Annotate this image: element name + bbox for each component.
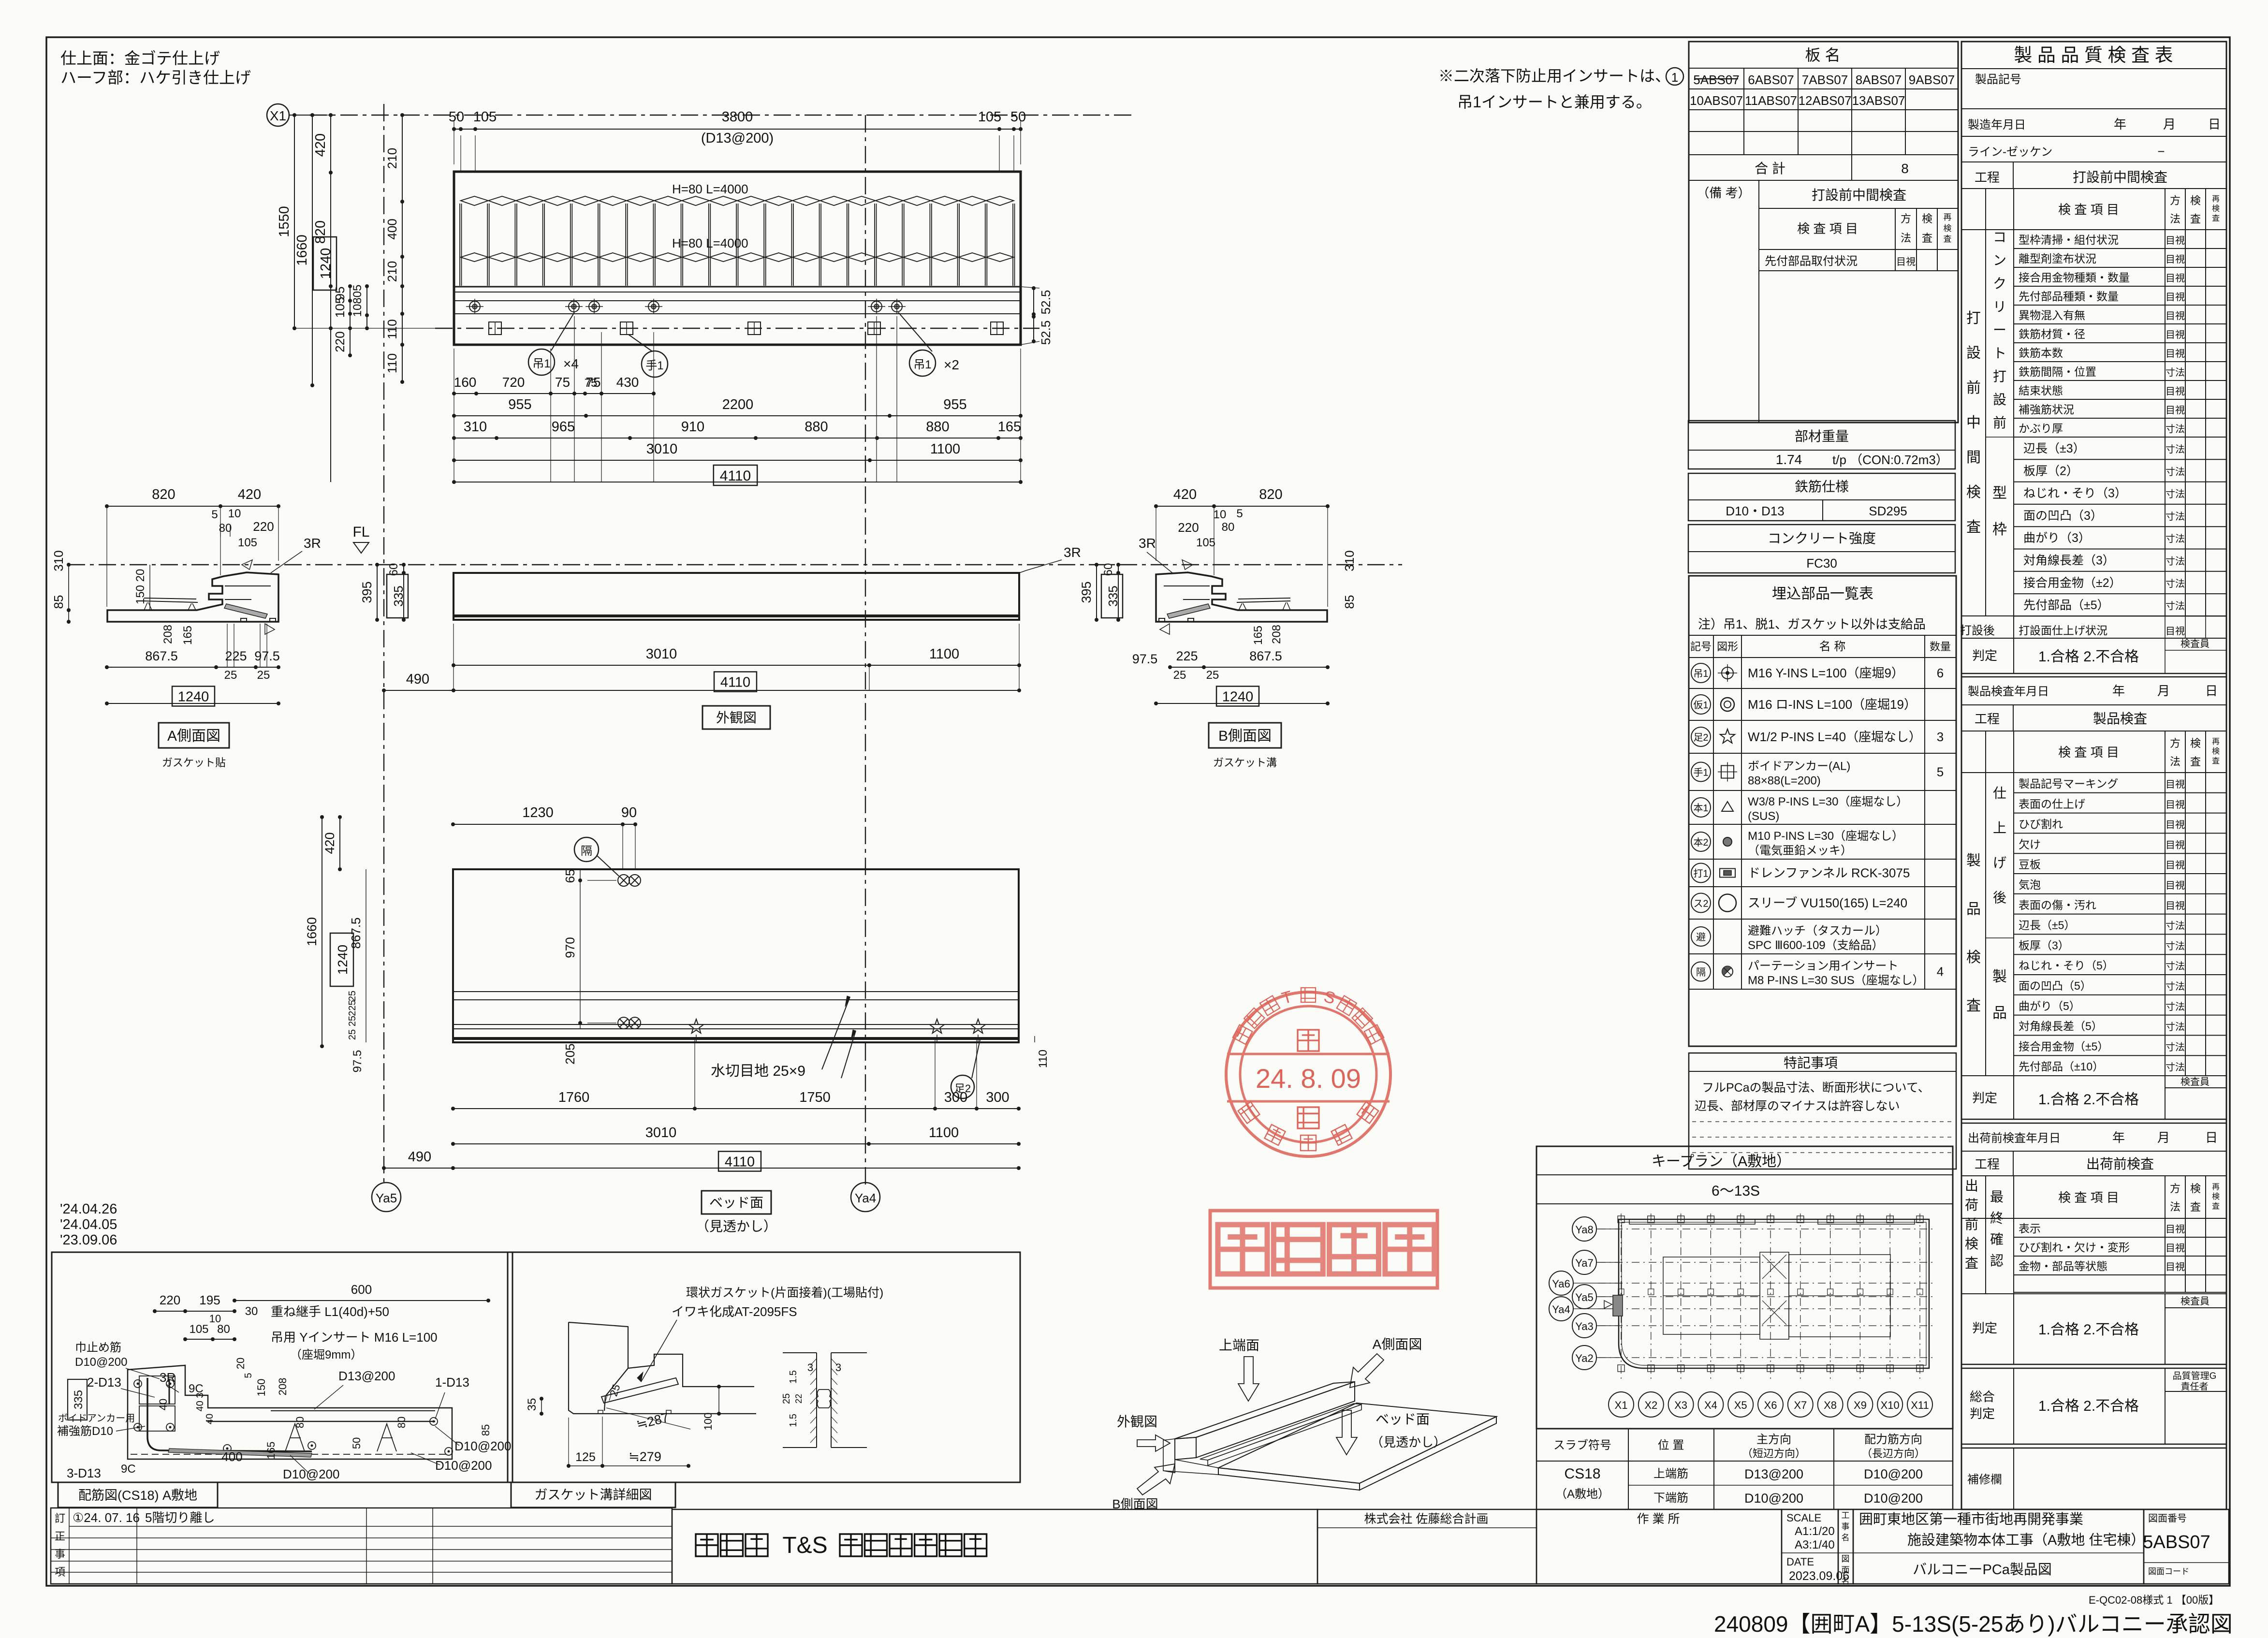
svg-text:法: 法 bbox=[2170, 756, 2180, 768]
svg-text:査: 査 bbox=[2190, 756, 2201, 768]
svg-text:M8 P-INS L=30 SUS（座堀なし）: M8 P-INS L=30 SUS（座堀なし） bbox=[1748, 974, 1924, 987]
svg-text:W3/8 P-INS L=30（座堀なし）: W3/8 P-INS L=30（座堀なし） bbox=[1748, 795, 1908, 808]
svg-text:75: 75 bbox=[585, 377, 598, 390]
svg-text:ねじれ・そり（3）: ねじれ・そり（3） bbox=[2023, 487, 2127, 500]
svg-text:30: 30 bbox=[245, 1305, 258, 1318]
svg-text:査: 査 bbox=[1966, 519, 1981, 535]
svg-text:−: − bbox=[2157, 144, 2165, 159]
svg-text:1240: 1240 bbox=[1222, 689, 1254, 704]
svg-text:寸法: 寸法 bbox=[2166, 981, 2185, 992]
svg-text:×2: ×2 bbox=[944, 357, 959, 372]
svg-text:寸法: 寸法 bbox=[2166, 511, 2185, 522]
svg-text:目視: 目視 bbox=[2166, 819, 2185, 831]
svg-text:目視: 目視 bbox=[2166, 880, 2185, 891]
svg-text:正: 正 bbox=[55, 1530, 65, 1542]
svg-text:3R: 3R bbox=[1139, 536, 1156, 551]
svg-text:6ABS07: 6ABS07 bbox=[1748, 73, 1794, 87]
svg-text:'24.04.05: '24.04.05 bbox=[60, 1217, 117, 1232]
svg-text:80: 80 bbox=[219, 522, 232, 535]
svg-text:目視: 目視 bbox=[2166, 292, 2185, 303]
svg-text:最: 最 bbox=[1990, 1189, 2004, 1204]
svg-text:寸法: 寸法 bbox=[2166, 961, 2185, 972]
svg-text:間: 間 bbox=[1966, 450, 1981, 466]
svg-text:本1: 本1 bbox=[1693, 803, 1708, 814]
svg-text:25: 25 bbox=[347, 1029, 358, 1040]
svg-text:205: 205 bbox=[563, 1043, 577, 1064]
svg-text:隔: 隔 bbox=[1696, 967, 1706, 978]
svg-text:月: 月 bbox=[2157, 1130, 2170, 1145]
svg-text:22: 22 bbox=[794, 1394, 804, 1404]
svg-text:40: 40 bbox=[157, 1399, 169, 1410]
svg-text:（A敷地）: （A敷地） bbox=[1555, 1488, 1610, 1501]
svg-text:X5: X5 bbox=[1734, 1399, 1747, 1411]
svg-text:1240: 1240 bbox=[335, 945, 350, 975]
svg-text:日: 日 bbox=[2208, 117, 2221, 132]
svg-text:1100: 1100 bbox=[929, 1125, 959, 1141]
svg-text:囲町東地区第一種市街地再開発事業: 囲町東地区第一種市街地再開発事業 bbox=[1859, 1511, 2083, 1527]
svg-text:目視: 目視 bbox=[2166, 1243, 2185, 1254]
svg-text:Ya8: Ya8 bbox=[1575, 1224, 1594, 1236]
svg-text:本2: 本2 bbox=[1693, 837, 1708, 848]
svg-text:1.合格 2.不合格: 1.合格 2.不合格 bbox=[2038, 1322, 2139, 1338]
svg-text:検: 検 bbox=[2212, 205, 2220, 213]
svg-text:先付部品（±10）: 先付部品（±10） bbox=[2019, 1060, 2104, 1073]
svg-text:≒279: ≒279 bbox=[629, 1449, 661, 1464]
svg-text:25: 25 bbox=[257, 669, 270, 682]
svg-text:3R: 3R bbox=[304, 536, 321, 551]
svg-text:ひび割れ: ひび割れ bbox=[2019, 818, 2063, 831]
svg-text:寸法: 寸法 bbox=[2166, 1001, 2185, 1012]
svg-text:上: 上 bbox=[1993, 820, 2006, 835]
svg-text:ボイドアンカー(AL): ボイドアンカー(AL) bbox=[1748, 760, 1850, 773]
svg-text:目視: 目視 bbox=[2166, 839, 2185, 850]
svg-text:80: 80 bbox=[217, 1323, 230, 1336]
svg-text:ねじれ・そり（5）: ねじれ・そり（5） bbox=[2019, 959, 2114, 972]
svg-text:225: 225 bbox=[1176, 649, 1198, 663]
svg-text:吊1: 吊1 bbox=[1693, 669, 1708, 679]
svg-text:避難ハッチ（タスカール）: 避難ハッチ（タスカール） bbox=[1748, 924, 1887, 937]
svg-text:確: 確 bbox=[1990, 1232, 2004, 1247]
svg-text:208: 208 bbox=[161, 625, 175, 644]
svg-text:Ya2: Ya2 bbox=[1575, 1352, 1594, 1364]
svg-text:バルコニーPCa製品図: バルコニーPCa製品図 bbox=[1913, 1562, 2052, 1578]
svg-text:荷: 荷 bbox=[1965, 1198, 1978, 1213]
svg-text:3: 3 bbox=[835, 1361, 841, 1374]
svg-text:製造年月日: 製造年月日 bbox=[1968, 118, 2026, 132]
svg-text:製: 製 bbox=[1992, 969, 2007, 985]
svg-text:820: 820 bbox=[1259, 487, 1282, 502]
svg-text:5: 5 bbox=[211, 508, 218, 521]
svg-text:打設後: 打設後 bbox=[1960, 624, 1995, 637]
svg-text:D10@200: D10@200 bbox=[75, 1356, 127, 1369]
svg-text:105: 105 bbox=[1196, 536, 1215, 549]
svg-text:記号: 記号 bbox=[1690, 641, 1712, 653]
svg-text:5: 5 bbox=[1236, 507, 1243, 520]
svg-text:目視: 目視 bbox=[2166, 626, 2185, 637]
svg-text:395: 395 bbox=[1079, 581, 1094, 603]
svg-text:M16 Y-INS L=100（座堀9）: M16 Y-INS L=100（座堀9） bbox=[1748, 666, 1904, 680]
svg-text:目視: 目視 bbox=[2166, 235, 2185, 246]
svg-text:1240: 1240 bbox=[178, 689, 209, 704]
svg-text:鉄筋本数: 鉄筋本数 bbox=[2019, 347, 2063, 359]
svg-text:年: 年 bbox=[2112, 684, 2125, 698]
svg-text:対角線長差（3）: 対角線長差（3） bbox=[2023, 554, 2115, 568]
svg-text:接合用金物種類・数量: 接合用金物種類・数量 bbox=[2019, 271, 2130, 284]
svg-text:寸法: 寸法 bbox=[2166, 424, 2185, 435]
svg-text:検 査 項 目: 検 査 項 目 bbox=[2058, 203, 2119, 217]
svg-text:名 称: 名 称 bbox=[1819, 640, 1846, 653]
svg-text:DATE: DATE bbox=[1786, 1556, 1814, 1568]
svg-text:環状ガスケット(片面接着)(工場貼付): 環状ガスケット(片面接着)(工場貼付) bbox=[686, 1286, 883, 1300]
svg-text:スリーブ VU150(165) L=240: スリーブ VU150(165) L=240 bbox=[1748, 896, 1907, 910]
svg-text:イワキ化成AT-2095FS: イワキ化成AT-2095FS bbox=[672, 1304, 797, 1319]
svg-text:5階切り離し: 5階切り離し bbox=[145, 1510, 215, 1525]
svg-text:製品検査年月日: 製品検査年月日 bbox=[1968, 685, 2049, 698]
svg-text:後: 後 bbox=[1993, 890, 2006, 905]
svg-text:88×88(L=200): 88×88(L=200) bbox=[1748, 775, 1821, 788]
svg-text:認: 認 bbox=[1990, 1253, 2004, 1268]
svg-text:部材重量: 部材重量 bbox=[1795, 429, 1849, 444]
svg-text:曲がり（5）: 曲がり（5） bbox=[2019, 1000, 2080, 1012]
svg-text:D10@200: D10@200 bbox=[454, 1439, 511, 1453]
svg-text:ライン-ゼッケン: ライン-ゼッケン bbox=[1968, 146, 2052, 159]
svg-text:310: 310 bbox=[1342, 550, 1357, 571]
svg-text:（短辺方向）: （短辺方向） bbox=[1742, 1448, 1806, 1460]
svg-text:H=80 L=4000: H=80 L=4000 bbox=[672, 236, 748, 250]
svg-text:SPC Ⅲ600-109（支給品）: SPC Ⅲ600-109（支給品） bbox=[1748, 939, 1884, 952]
svg-text:合 計: 合 計 bbox=[1755, 161, 1785, 176]
svg-text:2023.09.06: 2023.09.06 bbox=[1789, 1569, 1849, 1583]
svg-text:4110: 4110 bbox=[720, 468, 751, 484]
svg-text:X6: X6 bbox=[1764, 1399, 1777, 1411]
svg-text:前: 前 bbox=[1965, 1217, 1978, 1232]
svg-text:検: 検 bbox=[1966, 484, 1981, 500]
svg-text:寸法: 寸法 bbox=[2166, 533, 2185, 544]
svg-text:フルPCaの製品寸法、断面形状について、: フルPCaの製品寸法、断面形状について、 bbox=[1702, 1081, 1930, 1095]
svg-text:X4: X4 bbox=[1704, 1399, 1717, 1411]
svg-text:25: 25 bbox=[347, 1016, 358, 1026]
svg-text:3010: 3010 bbox=[645, 1125, 677, 1141]
svg-text:出荷前検査年月日: 出荷前検査年月日 bbox=[1968, 1132, 2061, 1145]
svg-text:'24.04.26: '24.04.26 bbox=[60, 1201, 117, 1217]
svg-text:検: 検 bbox=[2190, 737, 2201, 749]
svg-text:株式会社 佐藤総合計画: 株式会社 佐藤総合計画 bbox=[1364, 1512, 1489, 1526]
svg-text:足2: 足2 bbox=[1693, 732, 1708, 743]
svg-text:手1: 手1 bbox=[645, 359, 663, 372]
svg-text:400: 400 bbox=[221, 1449, 242, 1464]
svg-text:検: 検 bbox=[1966, 950, 1981, 965]
svg-text:B側面図: B側面図 bbox=[1218, 728, 1272, 744]
svg-text:年: 年 bbox=[2114, 117, 2126, 132]
svg-text:3R: 3R bbox=[160, 1370, 176, 1385]
svg-text:製品検査: 製品検査 bbox=[2093, 711, 2147, 726]
svg-text:寸法: 寸法 bbox=[2166, 444, 2185, 455]
svg-text:85: 85 bbox=[1342, 595, 1357, 609]
svg-text:310: 310 bbox=[51, 550, 66, 571]
svg-text:型枠清掃・組付状況: 型枠清掃・組付状況 bbox=[2019, 234, 2119, 246]
svg-text:600: 600 bbox=[351, 1282, 372, 1297]
svg-text:先付部品取付状況: 先付部品取付状況 bbox=[1765, 255, 1858, 268]
svg-text:鉄筋仕様: 鉄筋仕様 bbox=[1795, 479, 1849, 494]
svg-text:目視: 目視 bbox=[2166, 273, 2185, 284]
svg-text:ガスケット溝詳細図: ガスケット溝詳細図 bbox=[535, 1488, 652, 1502]
svg-text:5ABS07: 5ABS07 bbox=[1693, 73, 1739, 87]
svg-text:製 品 品 質 検 査 表: 製 品 品 質 検 査 表 bbox=[2014, 45, 2173, 66]
svg-text:査: 査 bbox=[1965, 1256, 1978, 1271]
svg-text:720: 720 bbox=[502, 375, 525, 390]
svg-text:吊1: 吊1 bbox=[913, 358, 931, 371]
svg-text:100: 100 bbox=[702, 1413, 714, 1431]
svg-text:220: 220 bbox=[1178, 520, 1199, 535]
svg-text:工: 工 bbox=[1842, 1511, 1850, 1520]
svg-text:表面の傷・汚れ: 表面の傷・汚れ bbox=[2019, 899, 2096, 911]
svg-text:検: 検 bbox=[2212, 747, 2220, 756]
svg-text:X10: X10 bbox=[1881, 1399, 1900, 1411]
svg-text:1.74: 1.74 bbox=[1776, 452, 1802, 467]
svg-text:9C: 9C bbox=[121, 1462, 136, 1476]
svg-text:検: 検 bbox=[1944, 224, 1952, 233]
svg-text:105: 105 bbox=[238, 536, 257, 549]
svg-text:75: 75 bbox=[555, 375, 570, 390]
svg-text:335: 335 bbox=[72, 1390, 85, 1409]
svg-text:図: 図 bbox=[1842, 1554, 1850, 1564]
svg-text:420: 420 bbox=[313, 133, 328, 157]
svg-text:接合用金物（±5）: 接合用金物（±5） bbox=[2019, 1040, 2108, 1053]
svg-text:335: 335 bbox=[391, 585, 406, 606]
svg-text:査: 査 bbox=[2212, 1202, 2220, 1211]
svg-text:数量: 数量 bbox=[1930, 641, 1951, 653]
svg-text:D10@200: D10@200 bbox=[435, 1458, 492, 1473]
svg-text:査: 査 bbox=[2190, 213, 2201, 225]
svg-text:検: 検 bbox=[1965, 1236, 1978, 1251]
svg-text:寸法: 寸法 bbox=[2166, 367, 2185, 378]
svg-text:210: 210 bbox=[385, 261, 399, 282]
svg-text:105: 105 bbox=[189, 1323, 208, 1336]
svg-text:A3:1/40: A3:1/40 bbox=[1795, 1538, 1835, 1551]
svg-text:195: 195 bbox=[199, 1293, 220, 1307]
svg-text:820: 820 bbox=[152, 487, 175, 502]
svg-text:対角線長差（5）: 対角線長差（5） bbox=[2019, 1020, 2103, 1033]
svg-text:X1: X1 bbox=[270, 108, 286, 123]
svg-text:1230: 1230 bbox=[522, 805, 554, 820]
svg-text:目視: 目視 bbox=[2166, 405, 2185, 416]
svg-text:（備 考）: （備 考） bbox=[1697, 186, 1750, 200]
svg-text:X7: X7 bbox=[1794, 1399, 1807, 1411]
svg-text:先付部品（±5）: 先付部品（±5） bbox=[2023, 599, 2109, 612]
svg-text:図面コード: 図面コード bbox=[2148, 1567, 2189, 1576]
svg-text:目視: 目視 bbox=[1896, 256, 1916, 267]
svg-text:重ね継手 L1(40d)+50: 重ね継手 L1(40d)+50 bbox=[271, 1304, 389, 1319]
svg-text:工程: 工程 bbox=[1975, 1157, 2000, 1171]
svg-text:吊用 Yインサート M16 L=100: 吊用 Yインサート M16 L=100 bbox=[271, 1330, 438, 1345]
svg-text:25: 25 bbox=[347, 991, 358, 1001]
svg-text:面の凹凸（3）: 面の凹凸（3） bbox=[2023, 509, 2103, 523]
svg-text:490: 490 bbox=[408, 1149, 431, 1165]
svg-text:巾止め筋: 巾止め筋 bbox=[75, 1341, 121, 1354]
svg-text:ベッド面: ベッド面 bbox=[709, 1195, 763, 1210]
svg-text:955: 955 bbox=[943, 397, 966, 412]
svg-text:335: 335 bbox=[1106, 585, 1120, 606]
svg-text:SCALE: SCALE bbox=[1786, 1512, 1821, 1524]
svg-text:880: 880 bbox=[926, 419, 949, 435]
svg-text:前: 前 bbox=[1966, 380, 1981, 396]
svg-text:設: 設 bbox=[1993, 392, 2006, 407]
svg-text:5: 5 bbox=[1937, 765, 1944, 779]
svg-text:ン: ン bbox=[1993, 253, 2006, 268]
svg-text:鉄筋材質・径: 鉄筋材質・径 bbox=[2019, 328, 2085, 340]
svg-text:検 査 項 目: 検 査 項 目 bbox=[1797, 221, 1858, 236]
svg-text:上端面: 上端面 bbox=[1219, 1338, 1259, 1353]
svg-text:A側面図: A側面図 bbox=[1373, 1337, 1422, 1352]
svg-text:事: 事 bbox=[1842, 1522, 1850, 1531]
svg-text:867.5: 867.5 bbox=[1249, 649, 1282, 663]
svg-text:1760: 1760 bbox=[558, 1090, 590, 1105]
svg-text:225: 225 bbox=[347, 1000, 358, 1016]
svg-text:ガスケット貼: ガスケット貼 bbox=[162, 757, 226, 769]
svg-text:辺長（±5）: 辺長（±5） bbox=[2019, 919, 2075, 932]
svg-text:X8: X8 bbox=[1824, 1399, 1837, 1411]
svg-text:867.5: 867.5 bbox=[349, 917, 363, 949]
svg-text:名: 名 bbox=[1842, 1577, 1850, 1586]
svg-text:225: 225 bbox=[225, 649, 247, 663]
svg-text:検: 検 bbox=[2190, 1183, 2201, 1195]
svg-text:打: 打 bbox=[1966, 310, 1981, 326]
svg-text:D10@200: D10@200 bbox=[1864, 1467, 1923, 1481]
svg-text:ス2: ス2 bbox=[1693, 899, 1708, 909]
svg-text:50: 50 bbox=[351, 1437, 363, 1449]
svg-text:品: 品 bbox=[1992, 1005, 2007, 1021]
svg-text:12ABS07: 12ABS07 bbox=[1799, 93, 1852, 108]
svg-text:165: 165 bbox=[265, 1442, 277, 1460]
svg-text:2200: 2200 bbox=[722, 397, 754, 412]
svg-text:辺長、部材厚のマイナスは許容しない: 辺長、部材厚のマイナスは許容しない bbox=[1695, 1099, 1900, 1113]
svg-text:日: 日 bbox=[2205, 1130, 2218, 1145]
svg-text:検 査 項 目: 検 査 項 目 bbox=[2058, 1190, 2119, 1205]
svg-text:主方向: 主方向 bbox=[1756, 1433, 1791, 1446]
svg-text:目視: 目視 bbox=[2166, 779, 2185, 790]
svg-text:490: 490 bbox=[406, 672, 429, 687]
svg-text:査: 査 bbox=[1966, 998, 1981, 1014]
svg-text:A1:1/20: A1:1/20 bbox=[1795, 1525, 1835, 1538]
svg-text:検: 検 bbox=[1922, 213, 1932, 225]
svg-text:400: 400 bbox=[385, 219, 399, 239]
svg-text:X11: X11 bbox=[1911, 1399, 1929, 1411]
svg-text:名: 名 bbox=[1842, 1533, 1850, 1542]
svg-text:Ya5: Ya5 bbox=[376, 1191, 397, 1205]
svg-text:(SUS): (SUS) bbox=[1748, 810, 1779, 823]
svg-text:方: 方 bbox=[2170, 1183, 2180, 1195]
svg-text:6: 6 bbox=[1937, 666, 1944, 680]
svg-text:B側面図: B側面図 bbox=[1112, 1497, 1158, 1511]
svg-text:日: 日 bbox=[2205, 684, 2218, 698]
svg-text:52.5: 52.5 bbox=[1039, 290, 1053, 315]
svg-text:867.5: 867.5 bbox=[145, 649, 178, 663]
svg-text:6〜13S: 6〜13S bbox=[1712, 1183, 1760, 1199]
svg-text:ドレンファンネル RCK-3075: ドレンファンネル RCK-3075 bbox=[1748, 866, 1910, 880]
svg-text:ト: ト bbox=[1993, 346, 2006, 361]
svg-text:65: 65 bbox=[563, 869, 577, 883]
svg-text:(D13@200): (D13@200) bbox=[701, 131, 774, 146]
svg-text:事: 事 bbox=[55, 1548, 65, 1560]
svg-text:955: 955 bbox=[508, 397, 531, 412]
svg-text:外観図: 外観図 bbox=[1117, 1414, 1157, 1429]
svg-text:訂: 訂 bbox=[55, 1512, 65, 1524]
svg-text:13ABS07: 13ABS07 bbox=[1852, 93, 1905, 108]
svg-text:査: 査 bbox=[1944, 234, 1952, 244]
svg-text:E-QC02-08様式 1 【00版】: E-QC02-08様式 1 【00版】 bbox=[2089, 1594, 2219, 1606]
svg-text:責任者: 責任者 bbox=[2180, 1381, 2208, 1392]
svg-text:4: 4 bbox=[1937, 965, 1944, 979]
svg-text:220: 220 bbox=[160, 1293, 180, 1307]
svg-text:ひび割れ・欠け・変形: ひび割れ・欠け・変形 bbox=[2019, 1241, 2130, 1254]
svg-text:D13@200: D13@200 bbox=[1744, 1467, 1803, 1481]
svg-text:A側面図: A側面図 bbox=[167, 728, 220, 744]
svg-text:総合: 総合 bbox=[1970, 1389, 1995, 1404]
svg-text:コ: コ bbox=[1993, 230, 2006, 245]
svg-text:法: 法 bbox=[1901, 232, 1911, 244]
svg-text:補強筋D10: 補強筋D10 bbox=[57, 1425, 113, 1438]
svg-text:85: 85 bbox=[51, 595, 66, 609]
svg-text:目視: 目視 bbox=[2166, 1261, 2185, 1272]
svg-text:気泡: 気泡 bbox=[2019, 878, 2041, 891]
svg-text:110: 110 bbox=[1037, 1050, 1050, 1068]
svg-text:3R: 3R bbox=[1064, 545, 1081, 560]
svg-text:月: 月 bbox=[2157, 684, 2170, 698]
svg-text:※二次落下防止用インサートは、: ※二次落下防止用インサートは、 bbox=[1438, 67, 1670, 85]
svg-text:目視: 目視 bbox=[2166, 799, 2185, 810]
svg-text:査: 査 bbox=[2212, 757, 2220, 765]
svg-text:20: 20 bbox=[234, 1358, 247, 1369]
svg-text:査: 査 bbox=[2190, 1201, 2201, 1213]
svg-text:310: 310 bbox=[464, 419, 487, 435]
svg-text:W1/2 P-INS L=40（座堀なし）: W1/2 P-INS L=40（座堀なし） bbox=[1748, 730, 1921, 744]
svg-text:90: 90 bbox=[621, 805, 637, 820]
svg-text:月: 月 bbox=[2163, 117, 2176, 132]
svg-text:（見透かし）: （見透かし） bbox=[1371, 1435, 1446, 1449]
svg-text:（座堀9mm）: （座堀9mm） bbox=[290, 1348, 362, 1361]
svg-text:判定: 判定 bbox=[1972, 1321, 1997, 1335]
svg-text:220: 220 bbox=[333, 331, 347, 352]
svg-text:CS18: CS18 bbox=[1564, 1466, 1600, 1482]
svg-text:板厚（3）: 板厚（3） bbox=[2019, 939, 2069, 951]
svg-text:125: 125 bbox=[575, 1450, 596, 1464]
svg-text:D10・D13: D10・D13 bbox=[1726, 504, 1784, 518]
svg-text:図面番号: 図面番号 bbox=[2148, 1513, 2187, 1524]
svg-text:手1: 手1 bbox=[1693, 767, 1708, 778]
svg-text:豆板: 豆板 bbox=[2019, 858, 2041, 871]
svg-text:Ya4: Ya4 bbox=[1552, 1303, 1570, 1316]
svg-text:300: 300 bbox=[986, 1090, 1009, 1105]
svg-text:前: 前 bbox=[1993, 415, 2006, 430]
svg-text:1.合格 2.不合格: 1.合格 2.不合格 bbox=[2038, 1398, 2139, 1414]
svg-text:製: 製 bbox=[1966, 853, 1981, 869]
svg-text:25: 25 bbox=[781, 1393, 792, 1404]
svg-text:1660: 1660 bbox=[294, 234, 310, 266]
svg-text:埋込部品一覧表: 埋込部品一覧表 bbox=[1772, 586, 1873, 602]
svg-text:寸法: 寸法 bbox=[2166, 921, 2185, 932]
svg-text:査: 査 bbox=[1922, 232, 1932, 244]
svg-text:寸法: 寸法 bbox=[2166, 600, 2185, 612]
svg-text:3: 3 bbox=[807, 1361, 813, 1374]
svg-text:420: 420 bbox=[1173, 487, 1197, 502]
svg-text:板 名: 板 名 bbox=[1805, 46, 1841, 64]
svg-text:鉄筋間隔・位置: 鉄筋間隔・位置 bbox=[2019, 366, 2096, 378]
svg-text:再: 再 bbox=[2212, 195, 2220, 204]
svg-text:40 3: 40 3 bbox=[195, 1393, 205, 1412]
svg-text:420: 420 bbox=[322, 832, 337, 854]
svg-text:目視: 目視 bbox=[2166, 900, 2185, 911]
svg-text:仮1: 仮1 bbox=[1693, 700, 1708, 711]
